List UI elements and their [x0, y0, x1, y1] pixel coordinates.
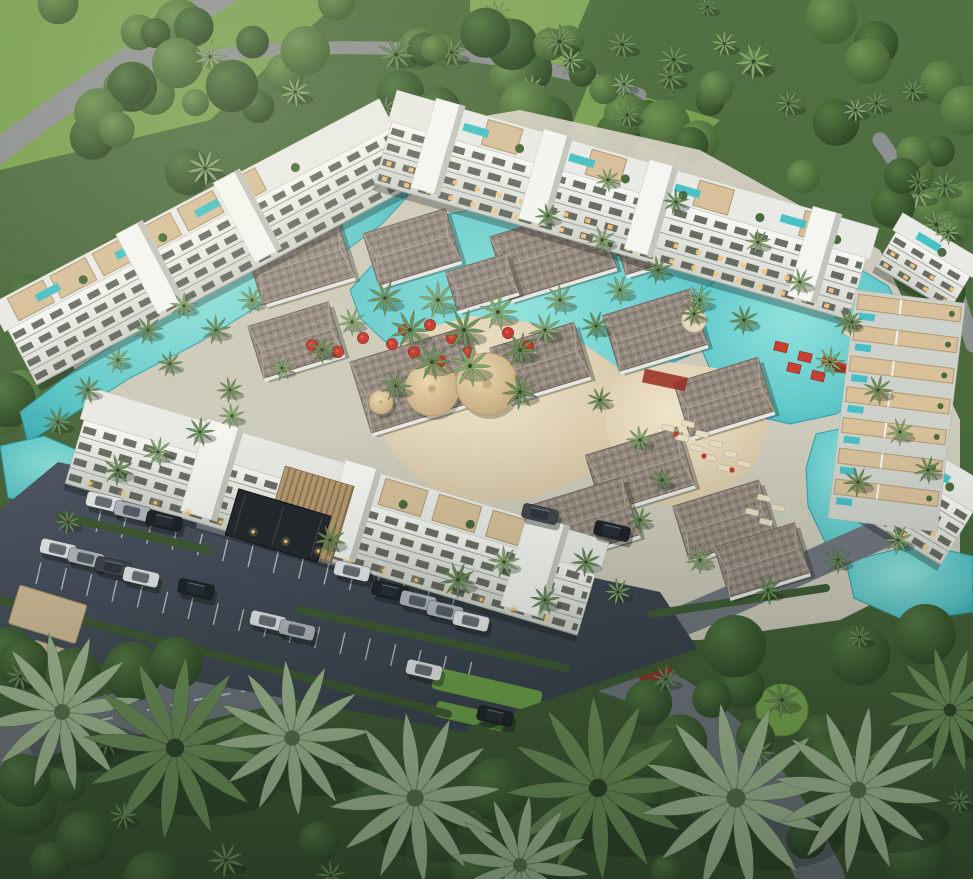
resort-aerial-render: Aerial 3D rendering of a tropical resort… — [0, 0, 973, 879]
scene-svg — [0, 0, 973, 879]
scene-root — [0, 0, 973, 879]
